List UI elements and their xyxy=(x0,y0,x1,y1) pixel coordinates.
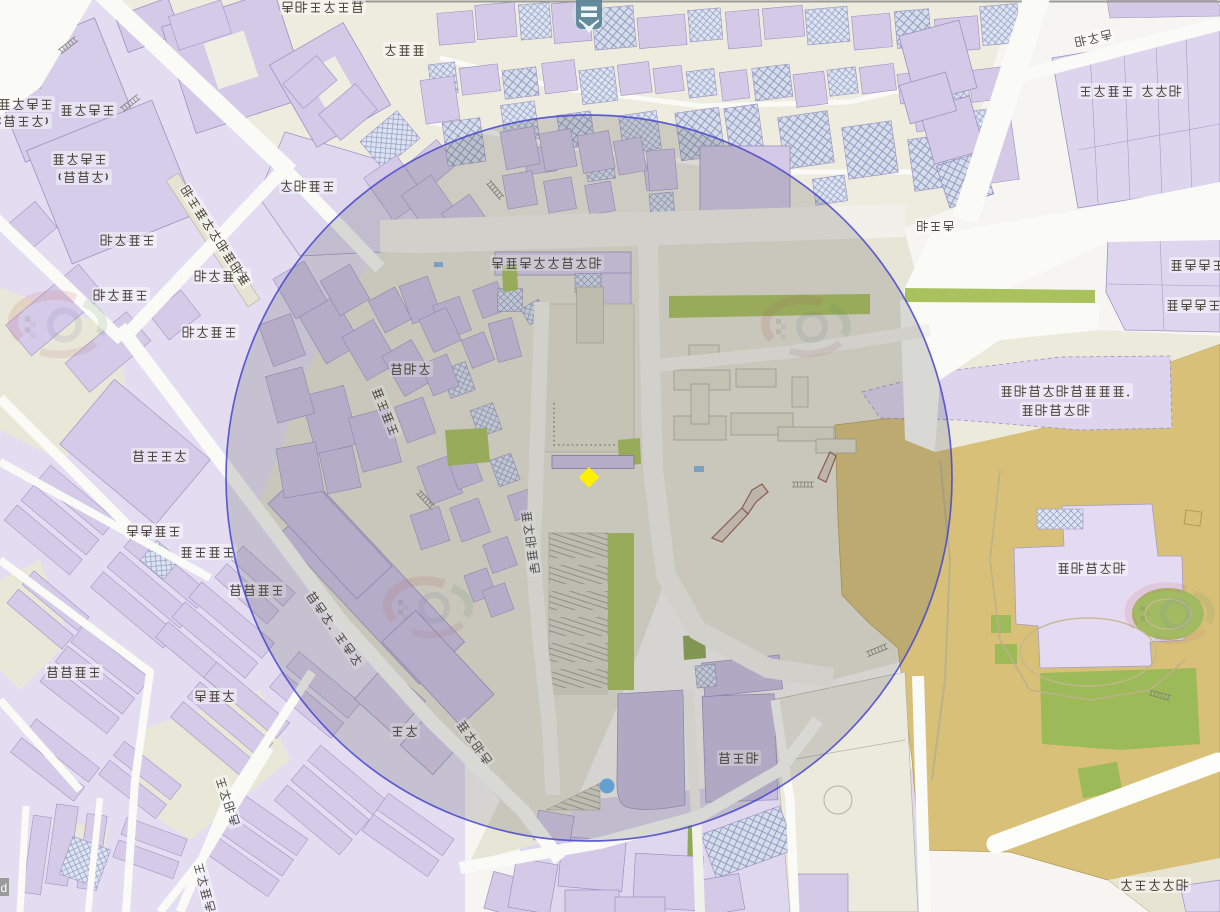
svg-text:d: d xyxy=(1,881,8,895)
